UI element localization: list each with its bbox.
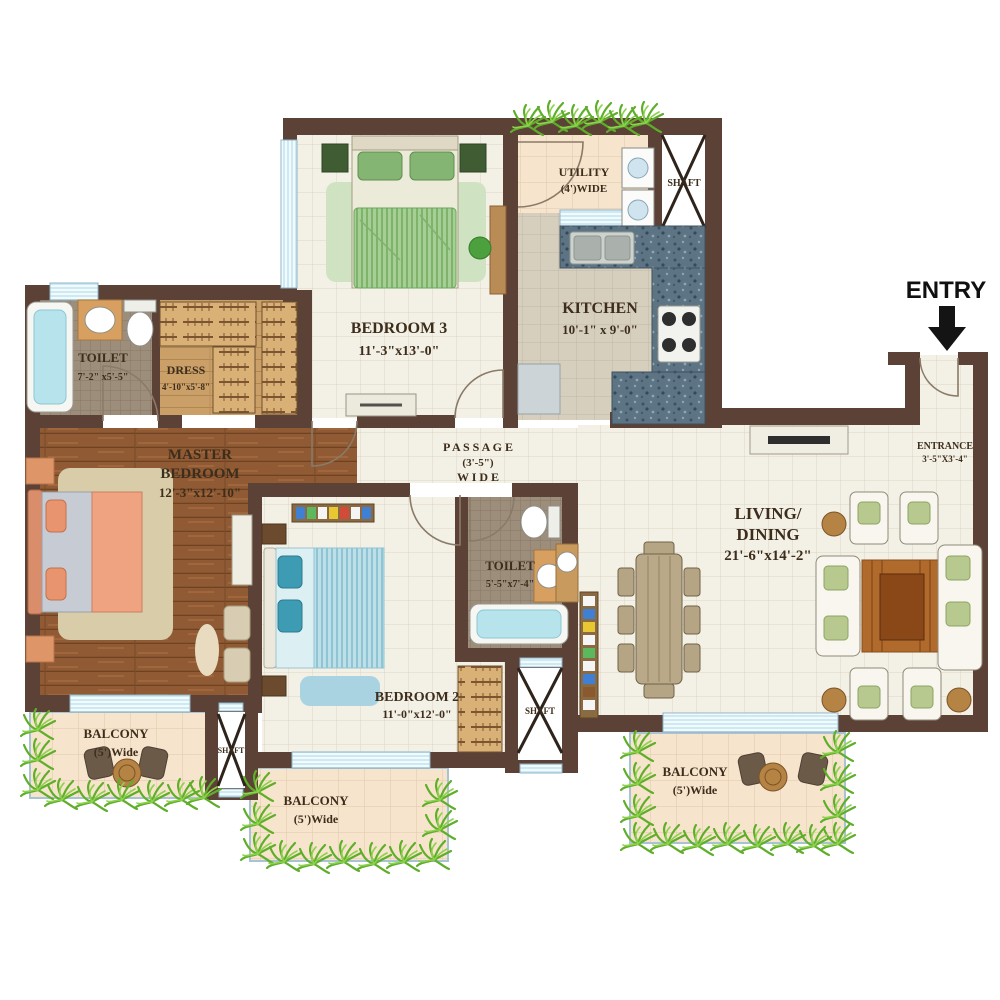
entrance-dims: 3'-5"X3'-4" — [922, 454, 968, 464]
bed-icon — [28, 490, 142, 614]
living-label-2: DINING — [736, 525, 799, 544]
side-table — [822, 688, 846, 712]
kitchen-label: KITCHEN — [562, 300, 638, 317]
nightstand — [460, 144, 486, 172]
desk-chair — [469, 237, 491, 259]
entry-arrow-head — [928, 327, 966, 351]
wardrobe — [160, 302, 256, 346]
shelf-unit — [580, 592, 598, 718]
passage-dims: (3'-5") — [462, 457, 493, 469]
entry-label: ENTRY — [906, 277, 986, 304]
desk — [490, 206, 506, 294]
wash-counter — [556, 544, 578, 602]
dress-label: DRESS — [167, 363, 206, 377]
bedroom2-label: BEDROOM 2 — [375, 690, 459, 705]
side-table — [947, 688, 971, 712]
toilet2-dims: 5'-5"x7'-4" — [486, 579, 534, 590]
nightstand — [262, 676, 286, 696]
master-label-2: BEDROOM — [160, 466, 239, 482]
balcony-table — [113, 759, 141, 787]
nightstand — [262, 524, 286, 544]
bookshelf — [292, 504, 374, 522]
armchair — [850, 492, 888, 544]
nightstand — [322, 144, 348, 172]
passage-label: P A S S A G E — [443, 440, 513, 454]
nightstand — [26, 636, 54, 662]
sofa — [816, 556, 860, 656]
oval-rug — [195, 624, 219, 676]
armchair — [224, 606, 250, 640]
floor-plan: ENTRY BEDROOM 3 11'-3"x13'-0" UTILITY (4… — [0, 0, 1000, 1000]
armchair — [850, 668, 888, 720]
balcony-mid-dims: (5')Wide — [294, 812, 339, 826]
bedroom3-dims: 11'-3"x13'-0" — [359, 344, 440, 359]
toilet2-label: TOILET — [485, 558, 535, 573]
entry-arrow-icon — [939, 306, 955, 328]
tv-console — [750, 426, 848, 454]
balcony-right-label: BALCONY — [662, 764, 728, 779]
master-dims: 12'-3"x12'-10" — [159, 485, 241, 500]
utility-dims: (4')WIDE — [561, 183, 607, 195]
balcony-left-label: BALCONY — [83, 726, 149, 741]
toilet1-label: TOILET — [78, 350, 128, 365]
balcony-table — [759, 763, 787, 791]
fridge-icon — [518, 364, 560, 414]
shaft-top-label: SHAFT — [667, 178, 701, 189]
toilet1-dims: 7'-2" x5'-5" — [78, 372, 129, 383]
wardrobe — [213, 347, 255, 413]
bathtub-water — [34, 310, 66, 404]
floor-plan-canvas: ENTRY BEDROOM 3 11'-3"x13'-0" UTILITY (4… — [0, 0, 1000, 1000]
living-label-1: LIVING/ — [734, 504, 801, 523]
armchair — [224, 648, 250, 682]
bedroom2-dims: 11'-0"x12'-0" — [382, 707, 451, 721]
rug — [300, 676, 380, 706]
wardrobe — [458, 666, 502, 752]
dress-dims: 4'-10"x5'-8" — [162, 382, 210, 392]
master-balcony-window — [70, 695, 190, 712]
side-table — [822, 512, 846, 536]
bed-icon — [352, 136, 458, 288]
living-balcony-window — [663, 713, 838, 732]
armchair — [900, 492, 938, 544]
entrance-floor — [918, 355, 973, 425]
nightstand — [26, 458, 54, 484]
bed-icon — [264, 548, 384, 668]
shaft-left-label: SHAFT — [218, 746, 245, 755]
toilet1-window — [50, 283, 98, 300]
passage-wide-label: W I D E — [457, 470, 499, 484]
bedroom3-label: BEDROOM 3 — [351, 320, 447, 337]
stove-icon — [658, 306, 700, 362]
utility-label: UTILITY — [559, 165, 610, 179]
balcony-left-dims: (5')Wide — [94, 745, 139, 759]
balcony-right-dims: (5')Wide — [673, 783, 718, 797]
wc-icon — [521, 506, 560, 538]
master-label-1: MASTER — [168, 447, 232, 463]
sink-icon — [570, 232, 634, 264]
coffee-table — [880, 574, 924, 640]
balcony-chair — [137, 746, 169, 781]
living-dims: 21'-6"x14'-2" — [724, 548, 811, 564]
kitchen-dims: 10'-1" x 9'-0" — [562, 322, 638, 337]
shaft-mid-label: SHAFT — [525, 706, 555, 716]
wardrobe — [262, 302, 297, 414]
bedroom2-balcony-window — [292, 752, 430, 768]
sofa — [938, 545, 982, 670]
entry-marker — [928, 306, 966, 351]
washbasin-icon — [85, 307, 115, 333]
armchair — [903, 668, 941, 720]
kitchen-counter — [612, 372, 705, 424]
dresser — [232, 515, 252, 585]
entrance-label: ENTRANCE — [917, 441, 973, 452]
bathtub-water — [477, 610, 561, 638]
bedroom3-window — [281, 140, 297, 288]
balcony-mid-label: BALCONY — [283, 793, 349, 808]
